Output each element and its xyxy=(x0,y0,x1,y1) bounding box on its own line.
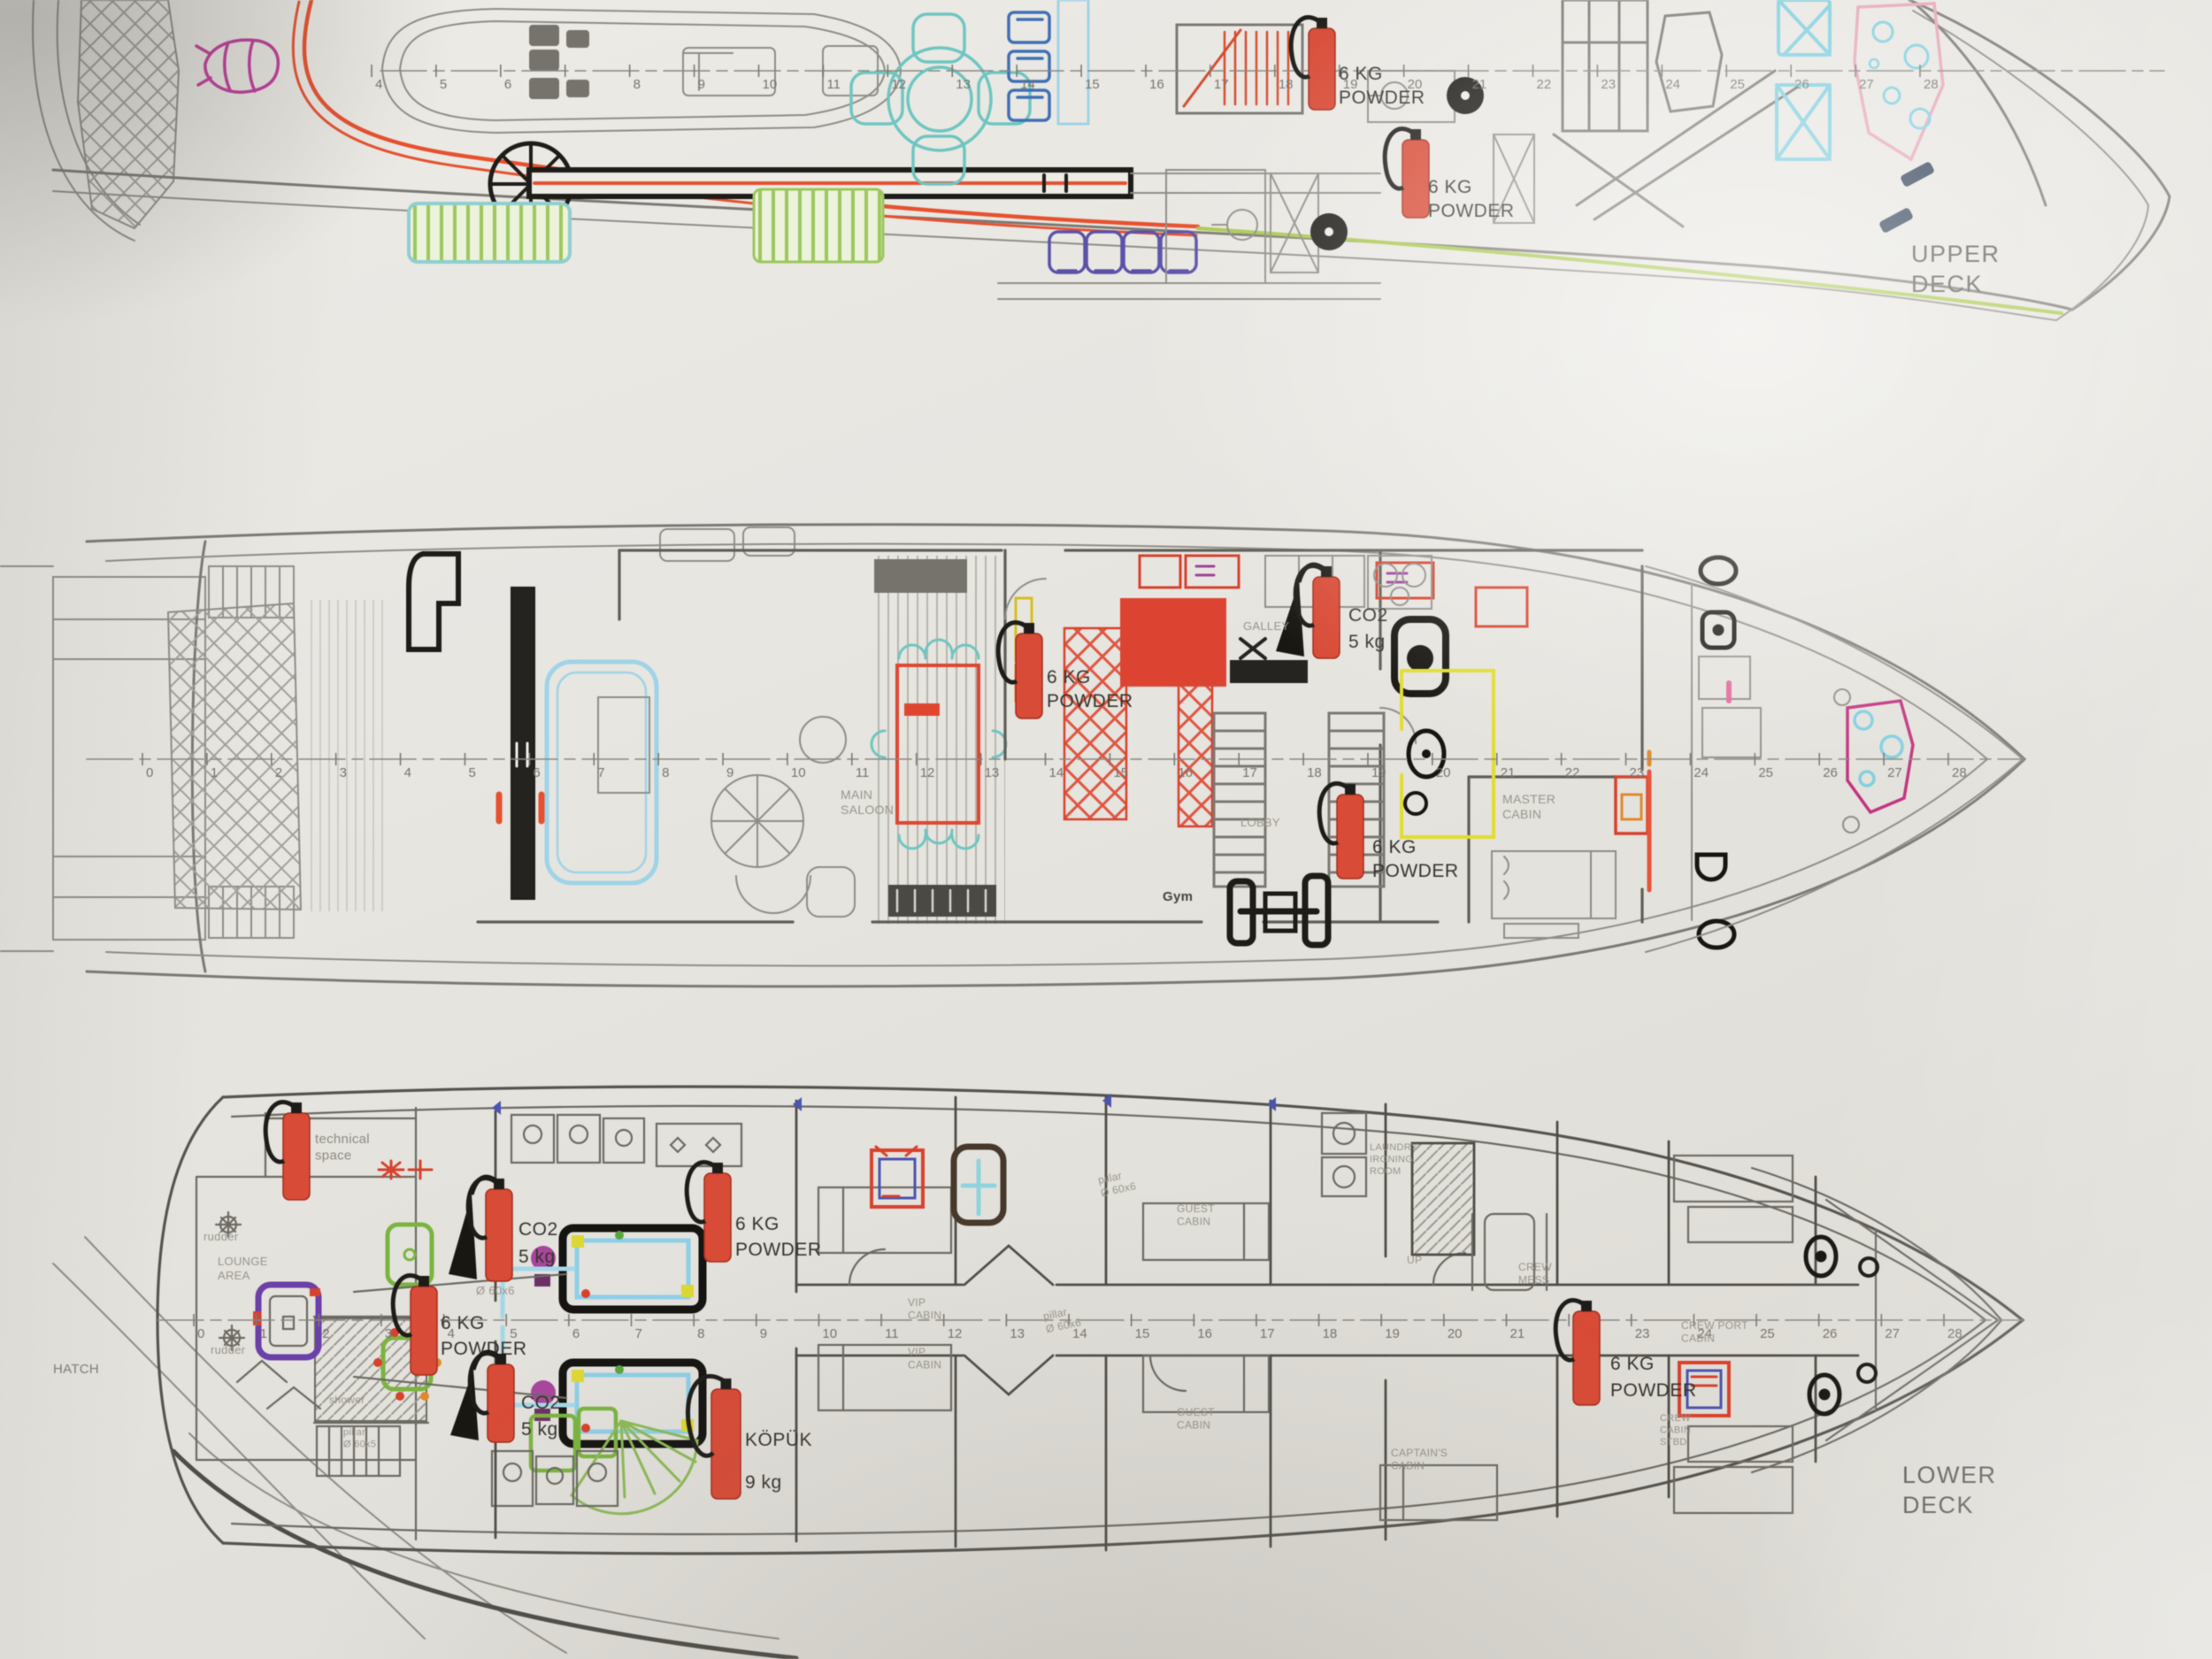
frame-number: 24 xyxy=(1665,77,1680,92)
plan-label: Gym xyxy=(1163,889,1193,904)
fire-extinguisher-powder: 6 KGPOWDER xyxy=(1555,1301,1696,1405)
frame-number: 17 xyxy=(1214,77,1229,92)
frame-number: 23 xyxy=(1630,765,1645,780)
master-cabin-furniture xyxy=(1492,851,1616,938)
frame-number: 22 xyxy=(1537,77,1552,92)
plan-label: GALLEY xyxy=(1243,619,1289,633)
frame-number: 26 xyxy=(1823,1326,1838,1341)
yacht-deck-plans: 4567891011121314151617181920212223242526… xyxy=(0,0,2212,1659)
frame-number: 16 xyxy=(1197,1326,1212,1341)
fire-extinguisher-co2: CO25 kg xyxy=(450,1352,561,1442)
frame-number: 13 xyxy=(1010,1326,1025,1341)
frame-number: 18 xyxy=(1279,77,1294,92)
fire-extinguisher-powder: 6 KGPOWDER xyxy=(1291,18,1425,110)
frame-number: 19 xyxy=(1371,765,1386,780)
extinguisher-body xyxy=(1337,795,1363,879)
frame-number: 5 xyxy=(468,765,475,780)
frame-number: 25 xyxy=(1760,1326,1775,1341)
plan-label: rudder xyxy=(211,1343,246,1356)
frame-number: 25 xyxy=(1730,77,1745,92)
frame-number: 6 xyxy=(572,1326,580,1341)
plan-label: shower xyxy=(329,1394,365,1406)
frame-number: 15 xyxy=(1085,77,1100,92)
frame-number: 12 xyxy=(948,1326,963,1341)
hatch-fan-center xyxy=(1461,91,1470,100)
extinguisher-body xyxy=(283,1113,310,1200)
frame-number: 5 xyxy=(440,77,447,92)
frame-number: 21 xyxy=(1501,765,1516,780)
frame-number: 26 xyxy=(1794,77,1809,92)
frame-number: 7 xyxy=(569,77,576,92)
deck-chairs xyxy=(1049,232,1196,273)
frame-number: 10 xyxy=(822,1326,837,1341)
frame-number: 19 xyxy=(1385,1326,1400,1341)
plan-label: LOUNGEAREA xyxy=(218,1255,268,1282)
walls xyxy=(478,550,1642,922)
extinguisher-label: 6 KGPOWDER xyxy=(1428,177,1515,221)
lower-deck-plan xyxy=(53,1087,2023,1658)
frame-number: 4 xyxy=(404,765,411,780)
plan-label: VIPCABIN xyxy=(908,1346,941,1371)
bow-fitting xyxy=(1834,689,1850,705)
frame-number: 28 xyxy=(1924,77,1939,92)
frame-number: 20 xyxy=(1448,1326,1463,1341)
washing-machine xyxy=(872,1147,923,1207)
hatch-fan-center xyxy=(1325,227,1333,236)
jetski xyxy=(196,40,278,92)
frame-number: 9 xyxy=(726,765,733,780)
extinguisher-label: 6 KGPOWDER xyxy=(735,1214,822,1260)
plan-label: CREW PORTCABIN xyxy=(1681,1319,1748,1345)
plan-label: pillarØ 60x5 xyxy=(343,1427,376,1449)
crew-stairs xyxy=(1412,1143,1474,1255)
frame-number: 28 xyxy=(1947,1326,1962,1341)
frame-number: 8 xyxy=(697,1326,704,1341)
frame-number: 6 xyxy=(533,765,540,780)
frame-number: 10 xyxy=(791,765,806,780)
round-dining-table xyxy=(851,14,1030,184)
frame-number: 12 xyxy=(920,765,935,780)
bar-counter xyxy=(1058,0,1088,124)
frame-number: 8 xyxy=(662,765,669,780)
plan-label: UP xyxy=(1407,1254,1422,1266)
extinguisher-label: 6 KGPOWDER xyxy=(1372,837,1459,881)
frame-number: 2 xyxy=(322,1326,329,1341)
bow-windlass xyxy=(1847,701,1913,812)
frame-number: 9 xyxy=(698,77,705,92)
frame-number: 24 xyxy=(1694,765,1709,780)
stern-mat xyxy=(168,603,301,910)
frame-number: 1 xyxy=(211,765,218,780)
upper-deck-plan xyxy=(33,0,2170,320)
plan-label: rudder xyxy=(204,1230,239,1243)
frame-number: 21 xyxy=(1510,1326,1525,1341)
fire-extinguisher-powder: 6 KGPOWDER xyxy=(1385,129,1514,221)
extinguisher-label: CO25 kg xyxy=(1348,605,1388,652)
extinguisher-body xyxy=(1313,577,1340,658)
frame-number: 16 xyxy=(1178,765,1193,780)
plan-label: CAPTAIN'SCABIN xyxy=(1391,1447,1448,1472)
frame-number: 17 xyxy=(1260,1326,1275,1341)
frame-number: 15 xyxy=(1135,1326,1150,1341)
plan-label: technicalspace xyxy=(315,1132,370,1163)
frame-number: 3 xyxy=(340,765,347,780)
frame-number: 21 xyxy=(1472,77,1487,92)
technical-equipment xyxy=(511,1115,741,1166)
frame-number: 2 xyxy=(275,765,282,780)
extinguisher-label: 6 KGPOWDER xyxy=(1610,1354,1697,1401)
saloon-sofa xyxy=(888,885,996,917)
bow-fitting xyxy=(1843,817,1859,833)
helm-wheel xyxy=(711,775,803,867)
frame-number: 11 xyxy=(856,765,870,780)
extinguisher-body xyxy=(711,1389,741,1499)
staircase xyxy=(1177,25,1302,113)
crew-galley xyxy=(492,1451,618,1506)
plan-label: LOWERDECK xyxy=(1902,1462,1997,1518)
aft-deck-edge xyxy=(998,283,1380,299)
frame-number: 27 xyxy=(1885,1326,1900,1341)
extinguisher-body xyxy=(411,1286,437,1375)
frame-number: 13 xyxy=(985,765,1000,780)
frame-number: 27 xyxy=(1859,77,1874,92)
laundry-machines xyxy=(1322,1113,1366,1196)
mast-structures xyxy=(1554,0,2046,227)
main-deck-plan xyxy=(0,525,2024,987)
frame-number: 0 xyxy=(197,1326,204,1341)
frame-number: 23 xyxy=(1635,1326,1650,1341)
frame-number: 12 xyxy=(891,77,906,92)
sideboard xyxy=(874,559,967,593)
plan-label: CREWMESS xyxy=(1518,1261,1552,1286)
deck-plan-photo: 4567891011121314151617181920212223242526… xyxy=(0,0,2212,1659)
saloon-floor xyxy=(874,556,1005,924)
fire-extinguisher-powder: 6 KGPOWDER xyxy=(1319,784,1458,881)
sunpad xyxy=(409,204,570,262)
frame-number: 4 xyxy=(375,77,382,92)
extinguisher-body xyxy=(1573,1311,1600,1405)
frame-number: 0 xyxy=(146,765,153,780)
frame-number: 14 xyxy=(1049,765,1064,780)
frame-number: 11 xyxy=(826,77,841,92)
extinguisher-body xyxy=(488,1364,514,1442)
plan-label: MASTERCABIN xyxy=(1502,792,1555,821)
frame-number: 6 xyxy=(504,77,511,92)
shower-cubicle xyxy=(954,1147,1003,1223)
sunpad xyxy=(754,189,883,262)
extinguisher-label: KÖPÜK9 kg xyxy=(745,1430,812,1493)
frame-number: 9 xyxy=(760,1326,767,1341)
extinguisher-body xyxy=(1016,634,1042,718)
teak-deck xyxy=(304,600,389,911)
frame-number: 23 xyxy=(1601,77,1616,92)
extinguisher-body xyxy=(1309,28,1335,110)
fire-extinguisher-co2: CO25 kg xyxy=(1276,565,1388,658)
extinguisher-body xyxy=(1402,140,1429,218)
fire-extinguisher-powder: 6 KGPOWDER xyxy=(687,1163,821,1262)
frame-number: 15 xyxy=(1113,765,1128,780)
plan-label: UPPERDECK xyxy=(1911,241,2001,297)
extinguisher-body xyxy=(704,1173,731,1262)
plan-label: LOBBY xyxy=(1240,816,1280,829)
extinguisher-label: CO25 kg xyxy=(518,1219,558,1267)
inner-sheer xyxy=(53,191,2056,320)
frame-number: 28 xyxy=(1952,765,1967,780)
deck-equipment xyxy=(409,554,534,899)
frame-number: 16 xyxy=(1149,77,1164,92)
frame-number: 17 xyxy=(1242,765,1257,780)
frame-number: 22 xyxy=(1565,765,1580,780)
frame-number: 27 xyxy=(1887,765,1902,780)
frame-number: 7 xyxy=(635,1326,642,1341)
frame-number: 7 xyxy=(597,765,604,780)
pool-platform xyxy=(598,697,649,793)
frame-number: 25 xyxy=(1758,765,1773,780)
plan-label: Ø 60x6 xyxy=(476,1284,515,1297)
frame-number: 18 xyxy=(1307,765,1322,780)
frame-number: 26 xyxy=(1823,765,1838,780)
frame-number: 11 xyxy=(885,1326,899,1341)
plan-label: CREWCABINSTBD xyxy=(1660,1413,1691,1448)
plan-label: GUESTCABIN xyxy=(1177,1202,1215,1228)
plan-label: pillarØ 60x6 xyxy=(1097,1167,1138,1199)
plan-label: VIPCABIN xyxy=(908,1296,941,1322)
fire-extinguisher-powder xyxy=(265,1102,310,1200)
co2-horn xyxy=(449,1194,477,1279)
frame-number: 10 xyxy=(763,77,778,92)
extinguisher-body xyxy=(486,1189,512,1281)
fire-boundary-red xyxy=(293,2,1196,235)
tv-cabinet xyxy=(1616,777,1647,833)
escape-hatch xyxy=(253,1285,320,1357)
frame-number: 14 xyxy=(1020,77,1035,92)
frame-number: 1 xyxy=(260,1326,267,1341)
fire-extinguisher-co2: CO25 kg xyxy=(449,1177,558,1281)
frame-number: 8 xyxy=(634,77,641,92)
plan-label: HATCH xyxy=(53,1362,99,1377)
plan-label: GUESTCABIN xyxy=(1177,1406,1215,1432)
frame-number: 13 xyxy=(956,77,971,92)
cleat xyxy=(1878,161,1935,234)
frame-number: 20 xyxy=(1436,765,1451,780)
frame-number: 18 xyxy=(1323,1326,1338,1341)
frame-number: 3 xyxy=(385,1326,392,1341)
